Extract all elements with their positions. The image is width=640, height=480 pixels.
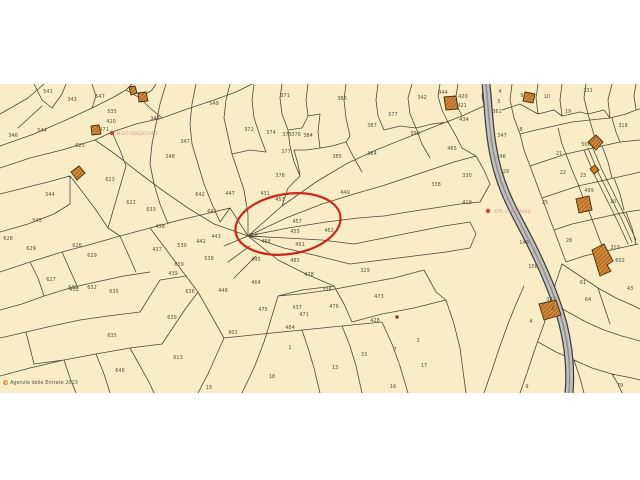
- parcel-number: 19: [565, 109, 571, 115]
- parcel-number: 628: [3, 236, 13, 242]
- parcel-number: 530: [177, 243, 187, 249]
- parcel-number: 437: [292, 305, 302, 311]
- parcel-number: 428: [370, 318, 380, 324]
- parcel-number: 319: [610, 245, 620, 251]
- parcel-number: 642: [195, 192, 205, 198]
- parcel-number: 629: [87, 253, 97, 259]
- parcel-number: 475: [258, 307, 268, 313]
- parcel-number: 331: [583, 88, 593, 94]
- parcel-number: 458: [261, 239, 271, 245]
- parcel-number: 471: [299, 312, 309, 318]
- parcel-number: 457: [292, 219, 302, 225]
- parcel-number: 33: [361, 352, 367, 358]
- parcel-number: 361: [492, 109, 502, 115]
- poi-label: B.GO COSOCCHIO: [117, 131, 158, 137]
- parcel-number: 344: [438, 90, 448, 96]
- parcel-number: 506: [581, 142, 591, 148]
- parcel-number: 374: [266, 130, 276, 136]
- parcel-number: 61: [580, 280, 586, 286]
- parcel-number: 549: [209, 101, 219, 107]
- parcel-number: 343: [67, 97, 77, 103]
- parcel-number: 10: [610, 199, 616, 205]
- parcel-number: 16: [390, 384, 396, 390]
- parcel-number: 64: [585, 297, 591, 303]
- parcel-number: 434: [459, 117, 469, 123]
- parcel-number: 629: [26, 246, 36, 252]
- parcel-number: 623: [105, 177, 115, 183]
- parcel-number: 18: [269, 374, 275, 380]
- parcel-number: 478: [304, 272, 314, 278]
- parcel-number: 626: [72, 243, 82, 249]
- parcel-number: 420: [458, 94, 468, 100]
- small-markers: [396, 316, 399, 319]
- parcel-number: 1: [551, 306, 554, 312]
- parcel-number: 484: [285, 325, 295, 331]
- parcel-number: 622: [126, 200, 136, 206]
- parcel-number: 465: [447, 146, 457, 152]
- parcel-number: 336: [322, 287, 332, 293]
- parcel-number: 471: [99, 127, 109, 133]
- parcel-number: 464: [251, 280, 261, 286]
- parcel-number: 473: [374, 294, 384, 300]
- parcel-number: 420: [106, 119, 116, 125]
- parcel-number: 149: [519, 240, 529, 246]
- poi-label: STR. COMUNALE: [494, 209, 531, 215]
- parcel-number: 635: [107, 333, 117, 339]
- parcel-number: 421: [457, 103, 467, 109]
- parcel-number: 346: [8, 133, 18, 139]
- parcel-number: 439: [168, 271, 178, 277]
- parcel-number: 22: [560, 170, 566, 176]
- parcel-number: 10: [544, 94, 550, 100]
- map-canvas[interactable]: 5413435475495353465444204716253463473486…: [0, 84, 640, 393]
- parcel-number: 378: [275, 173, 285, 179]
- parcel-number: 639: [167, 315, 177, 321]
- parcel-number: 4: [498, 89, 501, 95]
- building-footprint: [138, 92, 148, 102]
- parcel-number: 43: [627, 286, 633, 292]
- parcel-number: 544: [45, 192, 55, 198]
- parcel-number: 108: [528, 264, 538, 270]
- parcel-number: 625: [75, 143, 85, 149]
- parcel-number: 9: [525, 384, 528, 390]
- parcel-number: 613: [173, 355, 183, 361]
- parcel-number: 476: [329, 304, 339, 310]
- parcel-number: 485: [290, 258, 300, 264]
- parcel-number: 347: [497, 133, 507, 139]
- parcel-number: 8: [519, 127, 522, 133]
- parcel-number: 545: [32, 218, 42, 224]
- bottom-letterbox: [0, 393, 640, 480]
- parcel-number: 318: [618, 123, 628, 129]
- copyright-text: Agenzia delle Entrate 2023: [10, 380, 78, 386]
- parcel-number: 372: [244, 127, 254, 133]
- parcel-number: 448: [218, 288, 228, 294]
- small-building-marker: [396, 316, 399, 319]
- parcel-number: 577: [388, 112, 398, 118]
- parcel-number: 633: [146, 207, 156, 213]
- poi-dot: [486, 209, 490, 213]
- building-footprint: [590, 165, 599, 174]
- parcel-number: 535: [107, 109, 117, 115]
- parcel-number: 329: [360, 268, 370, 274]
- parcel-number: 455: [290, 229, 300, 235]
- parcel-number: 377: [281, 149, 291, 155]
- building-footprint: [523, 92, 535, 103]
- parcel-number: 25: [542, 200, 548, 206]
- parcel-number: 541: [43, 89, 53, 95]
- parcel-number: 17: [421, 363, 427, 369]
- parcel-number: 641: [207, 209, 217, 215]
- parcel-number: 419: [462, 200, 472, 206]
- parcel-number: 438: [155, 224, 165, 230]
- parcel-number: 386: [337, 96, 347, 102]
- parcel-number: 431: [260, 191, 270, 197]
- parcel-number: 385: [332, 154, 342, 160]
- cadastral-map[interactable]: 5413435475495353465444204716253463473486…: [0, 84, 640, 393]
- parcel-number: 602: [615, 258, 625, 264]
- parcel-number: 384: [367, 151, 377, 157]
- building-footprint: [576, 196, 592, 213]
- parcel-number: 371: [280, 93, 290, 99]
- copyright-icon: ©: [2, 379, 9, 387]
- parcel-number: 3: [416, 338, 419, 344]
- parcel-number: 447: [225, 191, 235, 197]
- parcel-number: 338: [431, 182, 441, 188]
- parcel-number: 544: [37, 128, 47, 134]
- parcel-number: 79: [617, 383, 623, 389]
- parcel-number: 376: [291, 132, 301, 138]
- parcel-number: 341: [546, 297, 556, 303]
- parcel-number: 445: [251, 257, 261, 263]
- parcel-number: 635: [109, 289, 119, 295]
- parcel-number: 330: [462, 173, 472, 179]
- parcel-number: 346: [150, 116, 160, 122]
- parcel-number: 4: [529, 319, 532, 325]
- parcel-number: 21: [556, 151, 562, 157]
- parcel-number: 499: [584, 188, 594, 194]
- parcel-number: 462: [324, 228, 334, 234]
- parcel-number: 1: [288, 345, 291, 351]
- parcel-number: 451: [295, 242, 305, 248]
- parcel-number: 538: [204, 256, 214, 262]
- parcel-number: 432: [69, 287, 79, 293]
- map-viewport: 5413435475495353465444204716253463473486…: [0, 0, 640, 480]
- parcel-number: 387: [367, 123, 377, 129]
- building-footprint: [444, 96, 458, 110]
- parcel-number: 342: [417, 95, 427, 101]
- poi-dot: [110, 131, 114, 135]
- parcel-number: 901: [228, 330, 238, 336]
- parcel-number: 5: [497, 99, 500, 105]
- parcel-number: 443: [211, 234, 221, 240]
- parcel-number: 347: [180, 139, 190, 145]
- parcel-number: 23: [580, 173, 586, 179]
- building-footprint: [71, 166, 85, 180]
- parcel-number: 636: [185, 289, 195, 295]
- parcel-number: 384: [303, 133, 313, 139]
- parcel-number: 437: [152, 247, 162, 253]
- parcel-number: 646: [115, 368, 125, 374]
- parcel-number: 13: [332, 365, 338, 371]
- parcel-number: 627: [46, 277, 56, 283]
- parcel-number: 7: [393, 347, 396, 353]
- parcel-number: 639: [174, 262, 184, 268]
- parcel-number: 456: [248, 233, 258, 239]
- parcel-number: 449: [340, 190, 350, 196]
- top-letterbox: [0, 0, 640, 84]
- parcel-number: 393: [410, 131, 420, 137]
- parcel-number: 28: [566, 238, 572, 244]
- parcel-number: 632: [87, 285, 97, 291]
- parcel-number: 15: [206, 385, 212, 391]
- parcel-number: 348: [165, 154, 175, 160]
- building-footprint: [129, 86, 137, 95]
- parcel-number: 453: [275, 197, 285, 203]
- parcel-number: 442: [196, 239, 206, 245]
- parcel-number: 547: [95, 94, 105, 100]
- parcel-number: 346: [496, 154, 506, 160]
- parcel-number: 9: [520, 93, 523, 99]
- parcel-number: 29: [503, 169, 509, 175]
